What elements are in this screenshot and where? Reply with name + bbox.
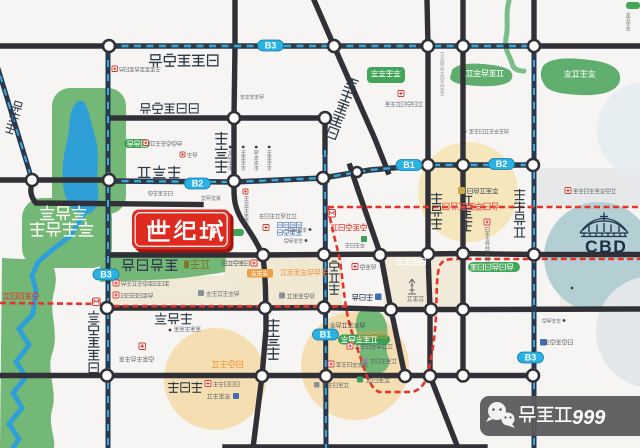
svg-text:B3: B3 bbox=[100, 270, 112, 280]
svg-text:B3: B3 bbox=[525, 353, 537, 363]
svg-text:B2: B2 bbox=[496, 159, 508, 169]
svg-text:CBD: CBD bbox=[585, 237, 627, 257]
svg-text:B3: B3 bbox=[265, 41, 277, 51]
svg-text:B2: B2 bbox=[192, 179, 204, 189]
svg-text:B1: B1 bbox=[403, 160, 415, 170]
svg-text:B1: B1 bbox=[320, 330, 332, 340]
svg-text:999: 999 bbox=[572, 407, 606, 429]
